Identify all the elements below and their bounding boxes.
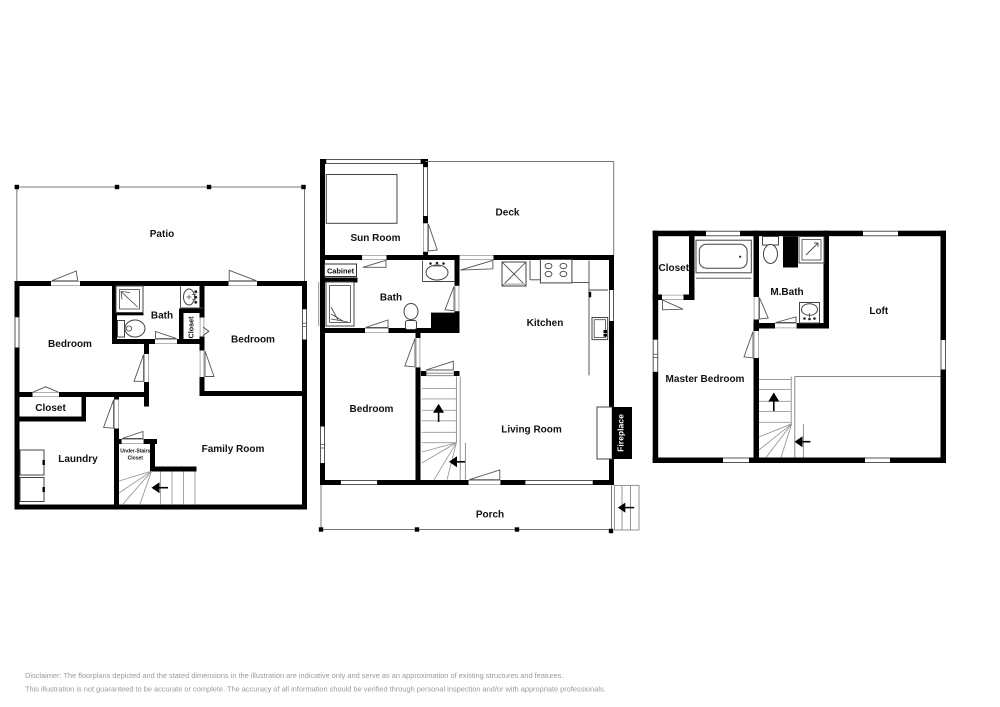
svg-text:Deck: Deck: [496, 208, 520, 219]
svg-text:Patio: Patio: [150, 229, 174, 240]
svg-text:Closet: Closet: [659, 263, 690, 274]
svg-text:Laundry: Laundry: [58, 454, 98, 465]
svg-text:Bedroom: Bedroom: [231, 335, 275, 346]
svg-text:Bedroom: Bedroom: [48, 339, 92, 350]
svg-text:Bath: Bath: [151, 311, 173, 322]
svg-text:Master Bedroom: Master Bedroom: [666, 374, 745, 385]
svg-text:Loft: Loft: [869, 306, 889, 317]
svg-text:Bedroom: Bedroom: [350, 404, 394, 415]
svg-text:Cabinet: Cabinet: [327, 266, 355, 275]
svg-text:Living Room: Living Room: [501, 425, 562, 436]
svg-text:Porch: Porch: [476, 510, 504, 521]
svg-text:Under-Stairs: Under-Stairs: [120, 449, 150, 455]
svg-text:Disclaimer: The floorplans dep: Disclaimer: The floorplans depicted and …: [25, 671, 563, 680]
svg-text:This illustration is not guara: This illustration is not guaranteed to b…: [25, 685, 606, 694]
svg-text:Family Room: Family Room: [202, 444, 265, 455]
svg-text:Closet: Closet: [187, 316, 196, 339]
svg-text:Fireplace: Fireplace: [616, 414, 626, 452]
svg-text:M.Bath: M.Bath: [770, 287, 803, 298]
svg-text:Kitchen: Kitchen: [527, 318, 564, 329]
svg-text:Closet: Closet: [35, 403, 66, 414]
svg-text:Bath: Bath: [380, 293, 402, 304]
svg-text:Sun Room: Sun Room: [351, 233, 401, 244]
svg-text:Closet: Closet: [128, 456, 144, 462]
